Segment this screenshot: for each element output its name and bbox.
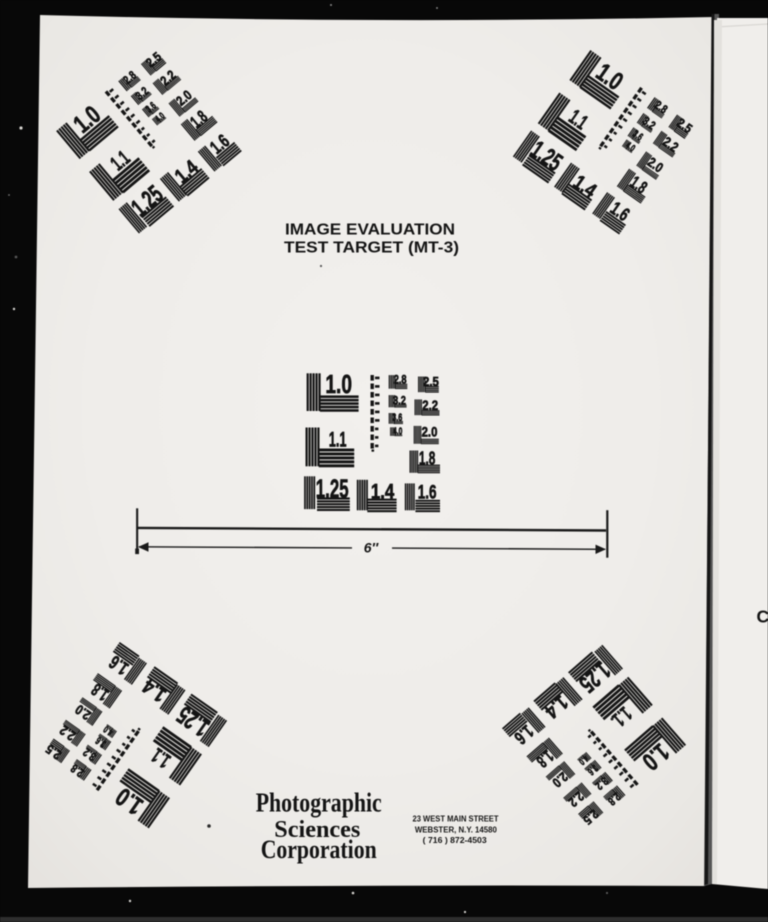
svg-text:23 WEST MAIN STREET: 23 WEST MAIN STREET [413,814,499,823]
svg-text:IMAGE EVALUATION: IMAGE EVALUATION [285,222,455,239]
svg-text:Corporation: Corporation [261,834,377,864]
svg-text:Ca: Ca [757,607,768,627]
svg-text:TEST TARGET (MT-3): TEST TARGET (MT-3) [284,239,459,256]
svg-text:( 716 ) 872-4503: ( 716 ) 872-4503 [423,836,488,845]
svg-text:Photographic: Photographic [256,787,382,817]
svg-text:6″: 6″ [364,540,380,556]
svg-text:WEBSTER, N.Y. 14580: WEBSTER, N.Y. 14580 [415,825,498,834]
